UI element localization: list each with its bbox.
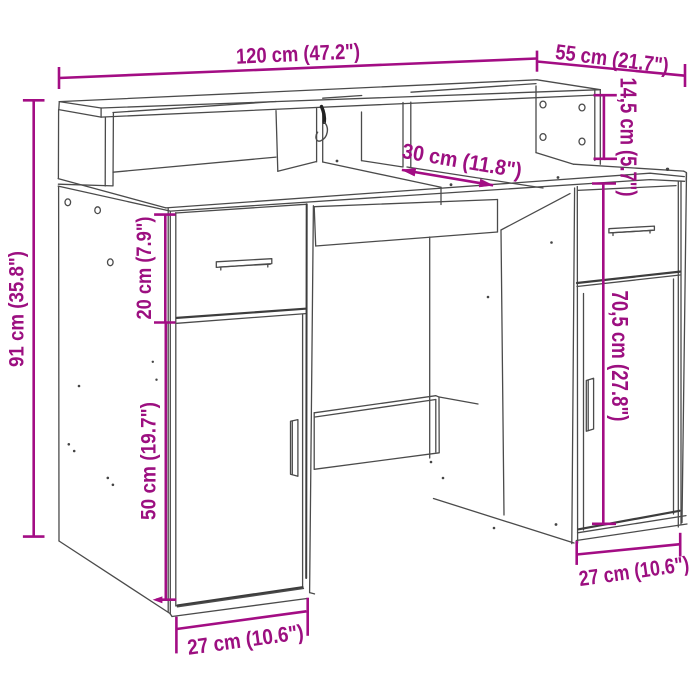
svg-text:20 cm (7.9"): 20 cm (7.9") (132, 217, 156, 320)
svg-text:14,5 cm (5.7"): 14,5 cm (5.7") (616, 78, 642, 197)
svg-text:91 cm (35.8"): 91 cm (35.8") (5, 251, 29, 367)
svg-text:70,5 cm (27.8"): 70,5 cm (27.8") (607, 291, 633, 422)
svg-text:50 cm (19.7"): 50 cm (19.7") (137, 402, 161, 520)
